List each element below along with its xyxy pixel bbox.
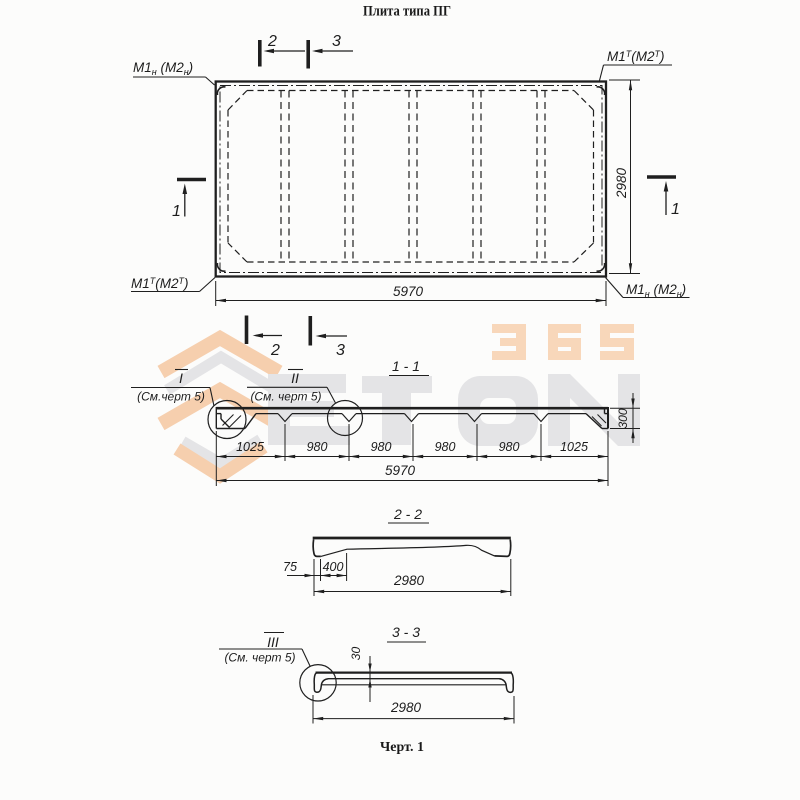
svg-text:1025: 1025 — [236, 440, 264, 454]
svg-text:2 - 2: 2 - 2 — [393, 506, 422, 522]
svg-text:1 - 1: 1 - 1 — [392, 358, 420, 374]
svg-text:3: 3 — [336, 342, 345, 359]
svg-text:3 - 3: 3 - 3 — [392, 624, 420, 640]
svg-text:I: I — [179, 370, 183, 386]
svg-text:II: II — [291, 370, 299, 386]
svg-text:980: 980 — [499, 440, 520, 454]
svg-text:300: 300 — [616, 408, 630, 428]
svg-text:30: 30 — [349, 647, 363, 661]
svg-text:2: 2 — [270, 342, 280, 359]
svg-text:(См.черт 5): (См.черт 5) — [137, 390, 205, 404]
svg-text:5970: 5970 — [385, 463, 416, 478]
svg-text:III: III — [267, 634, 279, 650]
svg-text:1: 1 — [172, 203, 181, 220]
svg-text:2980: 2980 — [614, 167, 629, 199]
svg-text:400: 400 — [323, 560, 344, 574]
svg-text:(См. черт 5): (См. черт 5) — [224, 651, 295, 665]
svg-text:3: 3 — [332, 33, 341, 50]
svg-text:75: 75 — [283, 560, 297, 574]
svg-text:980: 980 — [435, 440, 456, 454]
svg-text:2980: 2980 — [393, 573, 425, 588]
svg-text:5970: 5970 — [393, 284, 424, 299]
svg-text:1: 1 — [671, 201, 680, 218]
svg-text:1025: 1025 — [560, 440, 588, 454]
svg-text:2980: 2980 — [390, 700, 422, 715]
svg-text:Черт. 1: Черт. 1 — [380, 740, 424, 755]
svg-text:2: 2 — [267, 33, 277, 50]
svg-text:(См. черт 5): (См. черт 5) — [250, 390, 321, 404]
svg-text:Плита типа ПГ: Плита типа ПГ — [363, 4, 451, 20]
svg-text:980: 980 — [307, 440, 328, 454]
svg-text:980: 980 — [371, 440, 392, 454]
